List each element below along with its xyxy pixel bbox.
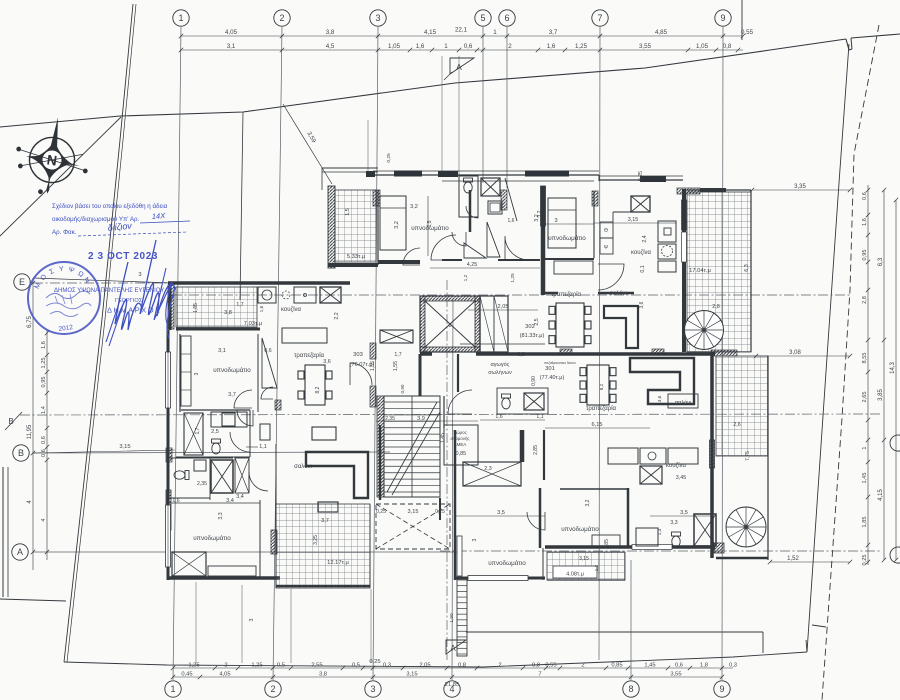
- svg-text:7: 7: [597, 13, 602, 23]
- svg-text:3: 3: [554, 218, 557, 224]
- svg-text:3: 3: [375, 13, 380, 23]
- svg-text:4.08τ.μ: 4.08τ.μ: [566, 572, 584, 578]
- svg-text:0,5: 0,5: [277, 662, 285, 668]
- svg-text:υπνοδωμάτιο: υπνοδωμάτιο: [548, 234, 586, 242]
- svg-text:αναμονής: αναμονής: [451, 436, 470, 441]
- svg-text:4,25: 4,25: [467, 262, 478, 268]
- svg-text:5: 5: [480, 13, 485, 23]
- svg-text:1: 1: [493, 29, 497, 36]
- svg-text:3,7: 3,7: [228, 392, 236, 398]
- svg-text:3,15: 3,15: [406, 672, 417, 678]
- svg-text:4,15: 4,15: [424, 29, 437, 36]
- svg-text:2: 2: [279, 13, 284, 23]
- svg-text:E: E: [19, 277, 25, 287]
- svg-text:3,8: 3,8: [319, 672, 327, 678]
- svg-text:3,25: 3,25: [313, 535, 319, 545]
- svg-text:1,45: 1,45: [862, 473, 868, 484]
- svg-text:301: 301: [545, 366, 555, 372]
- svg-text:0,8: 0,8: [723, 43, 732, 50]
- svg-text:3,3: 3,3: [218, 512, 224, 519]
- svg-text:1,6: 1,6: [862, 218, 868, 226]
- svg-text:9: 9: [720, 13, 725, 23]
- svg-text:1,3: 1,3: [657, 528, 663, 535]
- svg-text:0,25: 0,25: [862, 555, 868, 566]
- svg-text:2,05: 2,05: [498, 304, 509, 310]
- svg-text:2: 2: [224, 662, 227, 668]
- svg-text:υπνοδωμάτιο: υπνοδωμάτιο: [561, 525, 599, 533]
- svg-text:1: 1: [862, 446, 868, 449]
- svg-text:1,25: 1,25: [251, 662, 262, 668]
- svg-text:0,6: 0,6: [675, 662, 683, 668]
- svg-text:3,15: 3,15: [408, 509, 419, 515]
- svg-text:4,05: 4,05: [219, 672, 230, 678]
- svg-text:4,15: 4,15: [878, 489, 884, 501]
- svg-text:1: 1: [444, 43, 448, 50]
- svg-text:4,05: 4,05: [225, 29, 238, 36]
- svg-text:τραπεζαρία: τραπεζαρία: [294, 353, 325, 359]
- svg-text:0,25: 0,25: [435, 509, 445, 515]
- svg-text:αγωγός: αγωγός: [490, 361, 509, 368]
- svg-text:0,5: 0,5: [352, 662, 360, 668]
- svg-text:3,2: 3,2: [410, 204, 418, 210]
- svg-text:1,7: 1,7: [394, 352, 401, 358]
- svg-text:3,35: 3,35: [794, 184, 806, 190]
- svg-text:3,2: 3,2: [585, 499, 591, 506]
- svg-text:1: 1: [178, 13, 183, 23]
- svg-text:0,6: 0,6: [41, 436, 47, 444]
- svg-text:2: 2: [508, 43, 512, 50]
- svg-text:0,3: 0,3: [383, 662, 391, 668]
- svg-text:0,95: 0,95: [41, 377, 47, 388]
- svg-text:1,90: 1,90: [449, 613, 455, 623]
- svg-text:σαλόνι: σαλόνι: [675, 399, 692, 406]
- svg-text:3,4: 3,4: [236, 494, 244, 500]
- svg-text:2,35: 2,35: [385, 416, 395, 422]
- svg-text:Σχέδιον βάσει του οποίου εξεδό: Σχέδιον βάσει του οποίου εξεδόθη η άδεια: [52, 203, 168, 210]
- svg-text:1,25: 1,25: [575, 43, 588, 50]
- svg-text:0,1: 0,1: [640, 265, 646, 272]
- svg-text:14Χ: 14Χ: [152, 211, 167, 221]
- svg-text:1,05: 1,05: [388, 43, 401, 50]
- svg-text:3: 3: [194, 372, 200, 375]
- svg-text:2: 2: [448, 323, 451, 329]
- svg-text:0,55: 0,55: [545, 662, 556, 668]
- svg-text:κουζίνα: κουζίνα: [631, 250, 652, 256]
- svg-text:1,2: 1,2: [463, 274, 469, 281]
- svg-text:2: 2: [270, 684, 275, 694]
- svg-text:κουζίνα: κουζίνα: [281, 307, 302, 313]
- svg-text:3,2: 3,2: [534, 214, 540, 222]
- svg-text:0,6: 0,6: [464, 43, 473, 50]
- svg-text:1,6: 1,6: [259, 305, 265, 312]
- svg-text:0,85: 0,85: [611, 662, 622, 668]
- svg-text:8,55: 8,55: [862, 353, 868, 364]
- svg-text:7,75: 7,75: [745, 451, 751, 461]
- svg-text:Θ: Θ: [604, 228, 608, 234]
- svg-text:1,2: 1,2: [594, 564, 599, 571]
- svg-text:2,3: 2,3: [484, 466, 492, 472]
- svg-text:8,2: 8,2: [599, 383, 604, 390]
- svg-text:3,85: 3,85: [878, 389, 884, 401]
- svg-text:1,6: 1,6: [416, 43, 425, 50]
- svg-text:4,85: 4,85: [655, 29, 668, 36]
- svg-text:0,8: 0,8: [532, 662, 540, 668]
- svg-text:A: A: [456, 62, 462, 72]
- svg-text:1,7: 1,7: [236, 302, 243, 308]
- svg-text:2,5: 2,5: [211, 429, 219, 435]
- svg-text:3,6: 3,6: [639, 301, 645, 308]
- svg-text:πιεζοθραυστικο δικτυο: πιεζοθραυστικο δικτυο: [544, 361, 576, 365]
- svg-text:6,3: 6,3: [878, 257, 884, 266]
- svg-text:σωλήνων: σωλήνων: [488, 369, 512, 376]
- svg-text:τραπεζαρία: τραπεζαρία: [551, 292, 582, 298]
- svg-text:3,55: 3,55: [670, 672, 681, 678]
- svg-text:1,55: 1,55: [370, 361, 376, 371]
- svg-text:1,85: 1,85: [862, 517, 868, 528]
- svg-text:7.03τ.μ: 7.03τ.μ: [244, 321, 263, 327]
- svg-text:8: 8: [628, 684, 633, 694]
- svg-text:1,6: 1,6: [495, 414, 502, 420]
- svg-text:17.04τ.μ: 17.04τ.μ: [689, 268, 711, 274]
- svg-text:A: A: [17, 547, 23, 557]
- svg-text:4,5: 4,5: [326, 43, 335, 50]
- svg-text:2,8: 2,8: [862, 296, 868, 304]
- svg-text:1,8: 1,8: [700, 662, 708, 668]
- svg-text:2 3 ΟCT 2023: 2 3 ΟCT 2023: [88, 251, 158, 262]
- svg-text:6,15: 6,15: [592, 422, 603, 428]
- svg-text:3,7: 3,7: [549, 29, 558, 36]
- svg-text:(81.33τ.μ): (81.33τ.μ): [520, 333, 545, 339]
- svg-text:3,15: 3,15: [579, 556, 589, 562]
- svg-text:1: 1: [170, 684, 175, 694]
- svg-text:(77.40τ.μ): (77.40τ.μ): [540, 375, 565, 381]
- svg-text:5.33τ.μ: 5.33τ.μ: [347, 254, 366, 260]
- svg-text:3: 3: [249, 619, 255, 622]
- svg-text:14,3: 14,3: [890, 362, 896, 374]
- svg-text:1,1: 1,1: [536, 414, 543, 420]
- svg-text:2,65: 2,65: [862, 392, 868, 403]
- svg-text:A: A: [450, 644, 456, 653]
- svg-text:1,7: 1,7: [195, 427, 201, 434]
- svg-text:3,1: 3,1: [218, 348, 226, 354]
- svg-text:υπνοδωμάτιο: υπνοδωμάτιο: [193, 534, 231, 542]
- svg-text:0,25: 0,25: [376, 509, 386, 515]
- svg-text:1,85: 1,85: [193, 303, 199, 313]
- svg-text:3,6: 3,6: [323, 359, 331, 365]
- svg-text:8,2: 8,2: [315, 386, 321, 393]
- svg-text:22,1: 22,1: [455, 27, 468, 34]
- svg-text:12.17τ.μ: 12.17τ.μ: [327, 560, 349, 566]
- svg-text:3,7: 3,7: [321, 518, 329, 524]
- svg-text:3: 3: [472, 538, 478, 541]
- svg-text:B: B: [18, 448, 24, 458]
- svg-text:21,85: 21,85: [445, 682, 460, 688]
- svg-text:3,08: 3,08: [789, 350, 801, 356]
- svg-text:τραπεζαρία: τραπεζαρία: [586, 406, 617, 412]
- svg-text:3: 3: [370, 684, 375, 694]
- svg-text:0,3: 0,3: [729, 662, 737, 668]
- svg-text:1,25: 1,25: [510, 273, 516, 283]
- svg-text:2,05: 2,05: [419, 662, 430, 668]
- svg-text:Ψ: Ψ: [604, 245, 608, 251]
- svg-text:2,8: 2,8: [712, 304, 720, 310]
- svg-text:11,95: 11,95: [27, 424, 33, 439]
- svg-text:0,95: 0,95: [862, 250, 868, 261]
- svg-text:7: 7: [538, 672, 541, 678]
- svg-text:3,3: 3,3: [670, 520, 677, 526]
- svg-text:9: 9: [719, 684, 724, 694]
- svg-text:υπνοδωμάτιο: υπνοδωμάτιο: [213, 366, 251, 374]
- svg-text:1,45: 1,45: [440, 433, 446, 443]
- svg-text:1,5: 1,5: [345, 208, 351, 215]
- svg-text:0,6: 0,6: [862, 192, 868, 200]
- svg-text:0,25: 0,25: [386, 153, 392, 163]
- svg-text:0,90: 0,90: [531, 376, 537, 386]
- svg-text:6: 6: [504, 13, 509, 23]
- svg-text:2,6: 2,6: [733, 422, 741, 428]
- svg-text:3,45: 3,45: [676, 475, 687, 481]
- svg-text:3,2: 3,2: [394, 221, 400, 229]
- svg-text:2,2: 2,2: [334, 312, 340, 319]
- svg-text:1,25: 1,25: [188, 662, 199, 668]
- svg-text:1,25: 1,25: [41, 358, 47, 369]
- svg-text:0,25: 0,25: [638, 171, 644, 181]
- svg-text:2,4: 2,4: [642, 235, 648, 242]
- svg-text:3,55: 3,55: [639, 43, 652, 50]
- svg-text:1,6: 1,6: [508, 218, 515, 224]
- svg-text:1,4: 1,4: [41, 406, 47, 414]
- svg-text:Αρ. Φακ.: Αρ. Φακ.: [52, 229, 77, 236]
- svg-text:3,8: 3,8: [224, 310, 232, 316]
- svg-text:2,35: 2,35: [197, 481, 207, 487]
- svg-text:2: 2: [498, 662, 501, 668]
- svg-text:3,5: 3,5: [680, 510, 688, 516]
- svg-text:σαλόνι: σαλόνι: [609, 290, 627, 297]
- svg-text:υπνοδωμάτιο: υπνοδωμάτιο: [488, 559, 526, 567]
- svg-text:4: 4: [41, 518, 47, 521]
- svg-text:0,90: 0,90: [400, 384, 405, 393]
- svg-text:302: 302: [525, 324, 535, 330]
- svg-text:3,1: 3,1: [227, 43, 236, 50]
- svg-text:1,05: 1,05: [696, 43, 709, 50]
- svg-text:3,9: 3,9: [417, 416, 425, 422]
- svg-text:3,6: 3,6: [657, 395, 663, 402]
- svg-text:3,15: 3,15: [628, 217, 639, 223]
- svg-text:2: 2: [581, 662, 584, 668]
- svg-text:6,3: 6,3: [744, 264, 750, 272]
- svg-text:1,55: 1,55: [393, 361, 399, 371]
- svg-text:1,52: 1,52: [787, 556, 799, 562]
- svg-text:2,55: 2,55: [311, 662, 322, 668]
- svg-text:1,6: 1,6: [41, 341, 47, 349]
- svg-text:0,8: 0,8: [458, 662, 466, 668]
- svg-text:2,85: 2,85: [533, 445, 539, 455]
- svg-text:1,1: 1,1: [259, 444, 267, 450]
- svg-text:1,6: 1,6: [547, 43, 556, 50]
- svg-text:0,55: 0,55: [741, 29, 754, 36]
- svg-text:3,8: 3,8: [326, 29, 335, 36]
- svg-text:0,45: 0,45: [181, 672, 192, 678]
- svg-text:2,5: 2,5: [534, 318, 540, 325]
- svg-text:3,15: 3,15: [119, 444, 130, 450]
- svg-text:303: 303: [353, 352, 363, 358]
- svg-text:3: 3: [138, 272, 141, 278]
- svg-text:1,45: 1,45: [644, 662, 655, 668]
- svg-text:3,5: 3,5: [497, 510, 505, 516]
- svg-text:6,75: 6,75: [27, 316, 33, 328]
